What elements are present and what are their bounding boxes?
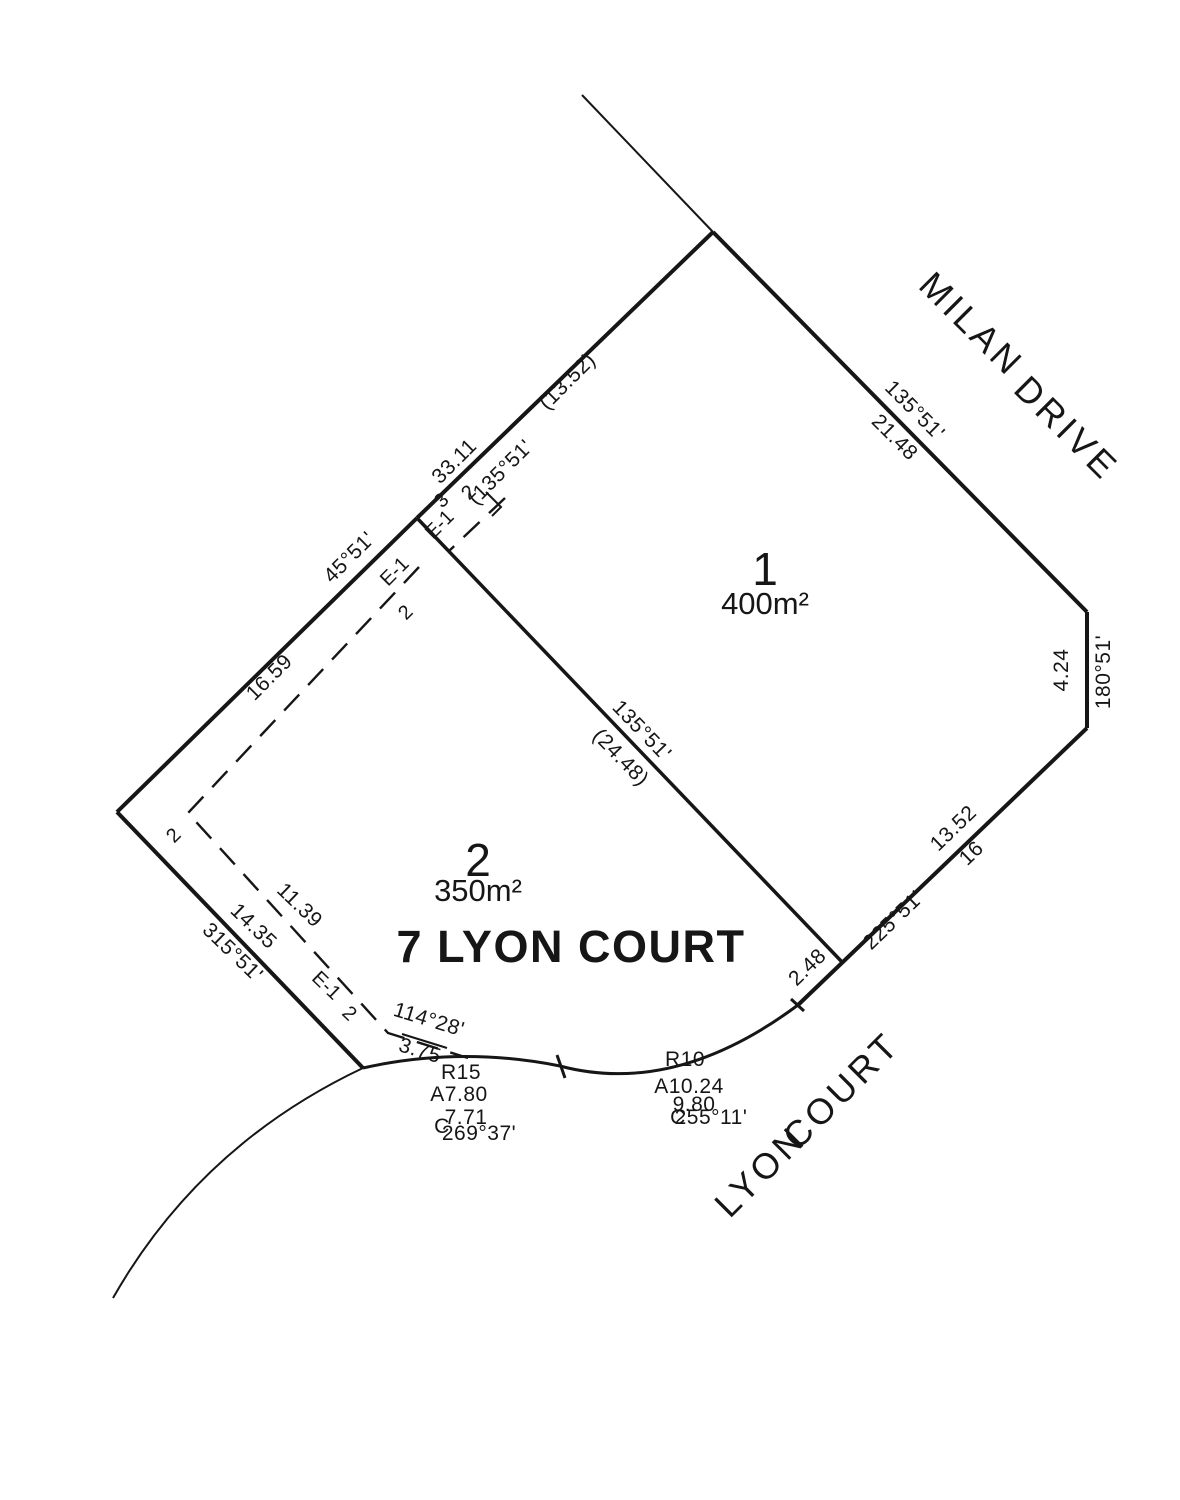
dim-easement-offset-2-sw: 2: [338, 1002, 361, 1026]
street-name-court: COURT: [775, 1024, 908, 1157]
northwest-dimension-labels: E-1 2 45°51' 16.59: [242, 527, 418, 705]
dim-easement-offset-2-corner: 2: [162, 824, 185, 847]
cul-de-sac-arc: [113, 1068, 363, 1298]
southeast-boundary-line: [798, 728, 1087, 1005]
dim-easement-sw-distance: 11.39: [272, 878, 326, 932]
curve2-labels: R10 A10.24 9.80 C 255°11': [654, 1048, 747, 1129]
address-highlight-label: 7 LYON COURT: [397, 921, 746, 972]
dim-easement-offset-2-nw: 2: [394, 601, 417, 624]
dim-curve1-chord-bearing: 269°37': [442, 1122, 516, 1145]
northeast-dimension-labels: (13.52) 33.11 (135°51' 3 2 E-1: [421, 349, 600, 544]
curve1-labels: R15 A7.80 C 7.71 269°37': [430, 1061, 516, 1145]
easement-label-c: E-1: [307, 967, 345, 1004]
lot2-area: 350m²: [434, 873, 522, 908]
dim-east-bearing: 180°51': [1092, 635, 1115, 709]
east-dimension-labels: 4.24 180°51': [1050, 635, 1115, 709]
street-name-milan: MILAN: [911, 264, 1032, 385]
dim-se-distance-2: 16: [955, 837, 988, 870]
title-boundary-extension-line: [582, 95, 713, 232]
lot1-area: 400m²: [721, 586, 809, 621]
easement-lines: [188, 492, 505, 1058]
milan-drive-labels: MILAN DRIVE 135°51' 21.48: [867, 264, 1127, 489]
dim-ne-ref-distance: (13.52): [535, 349, 601, 415]
dim-nw-distance: 16.59: [242, 650, 297, 705]
dim-tangent-distance: 2.48: [784, 944, 831, 990]
subdivision-plan-svg: (13.52) 33.11 (135°51' 3 2 E-1 E-1 2 45°…: [0, 0, 1180, 1500]
dim-curve2-chord-bearing: 255°11': [675, 1106, 748, 1129]
dim-se-bearing: 225°51': [859, 886, 928, 954]
dim-east-distance: 4.24: [1050, 649, 1073, 692]
easement-label-a: E-1: [421, 506, 459, 544]
dim-curve2-radius: R10: [665, 1048, 705, 1071]
dim-curve1-radius: R15: [441, 1061, 481, 1084]
subdivision-plan: (13.52) 33.11 (135°51' 3 2 E-1 E-1 2 45°…: [0, 0, 1180, 1500]
southeast-dimension-labels: 13.52 16 225°51' 2.48: [784, 801, 988, 991]
dim-nw-bearing: 45°51': [319, 527, 379, 587]
easement-label-b: E-1: [376, 553, 414, 591]
dim-curve1-arc: A7.80: [430, 1083, 487, 1106]
dim-frac-distance: 3.75: [396, 1034, 444, 1069]
southwest-boundary-line: [117, 812, 363, 1068]
street-name-drive: DRIVE: [1006, 368, 1127, 489]
